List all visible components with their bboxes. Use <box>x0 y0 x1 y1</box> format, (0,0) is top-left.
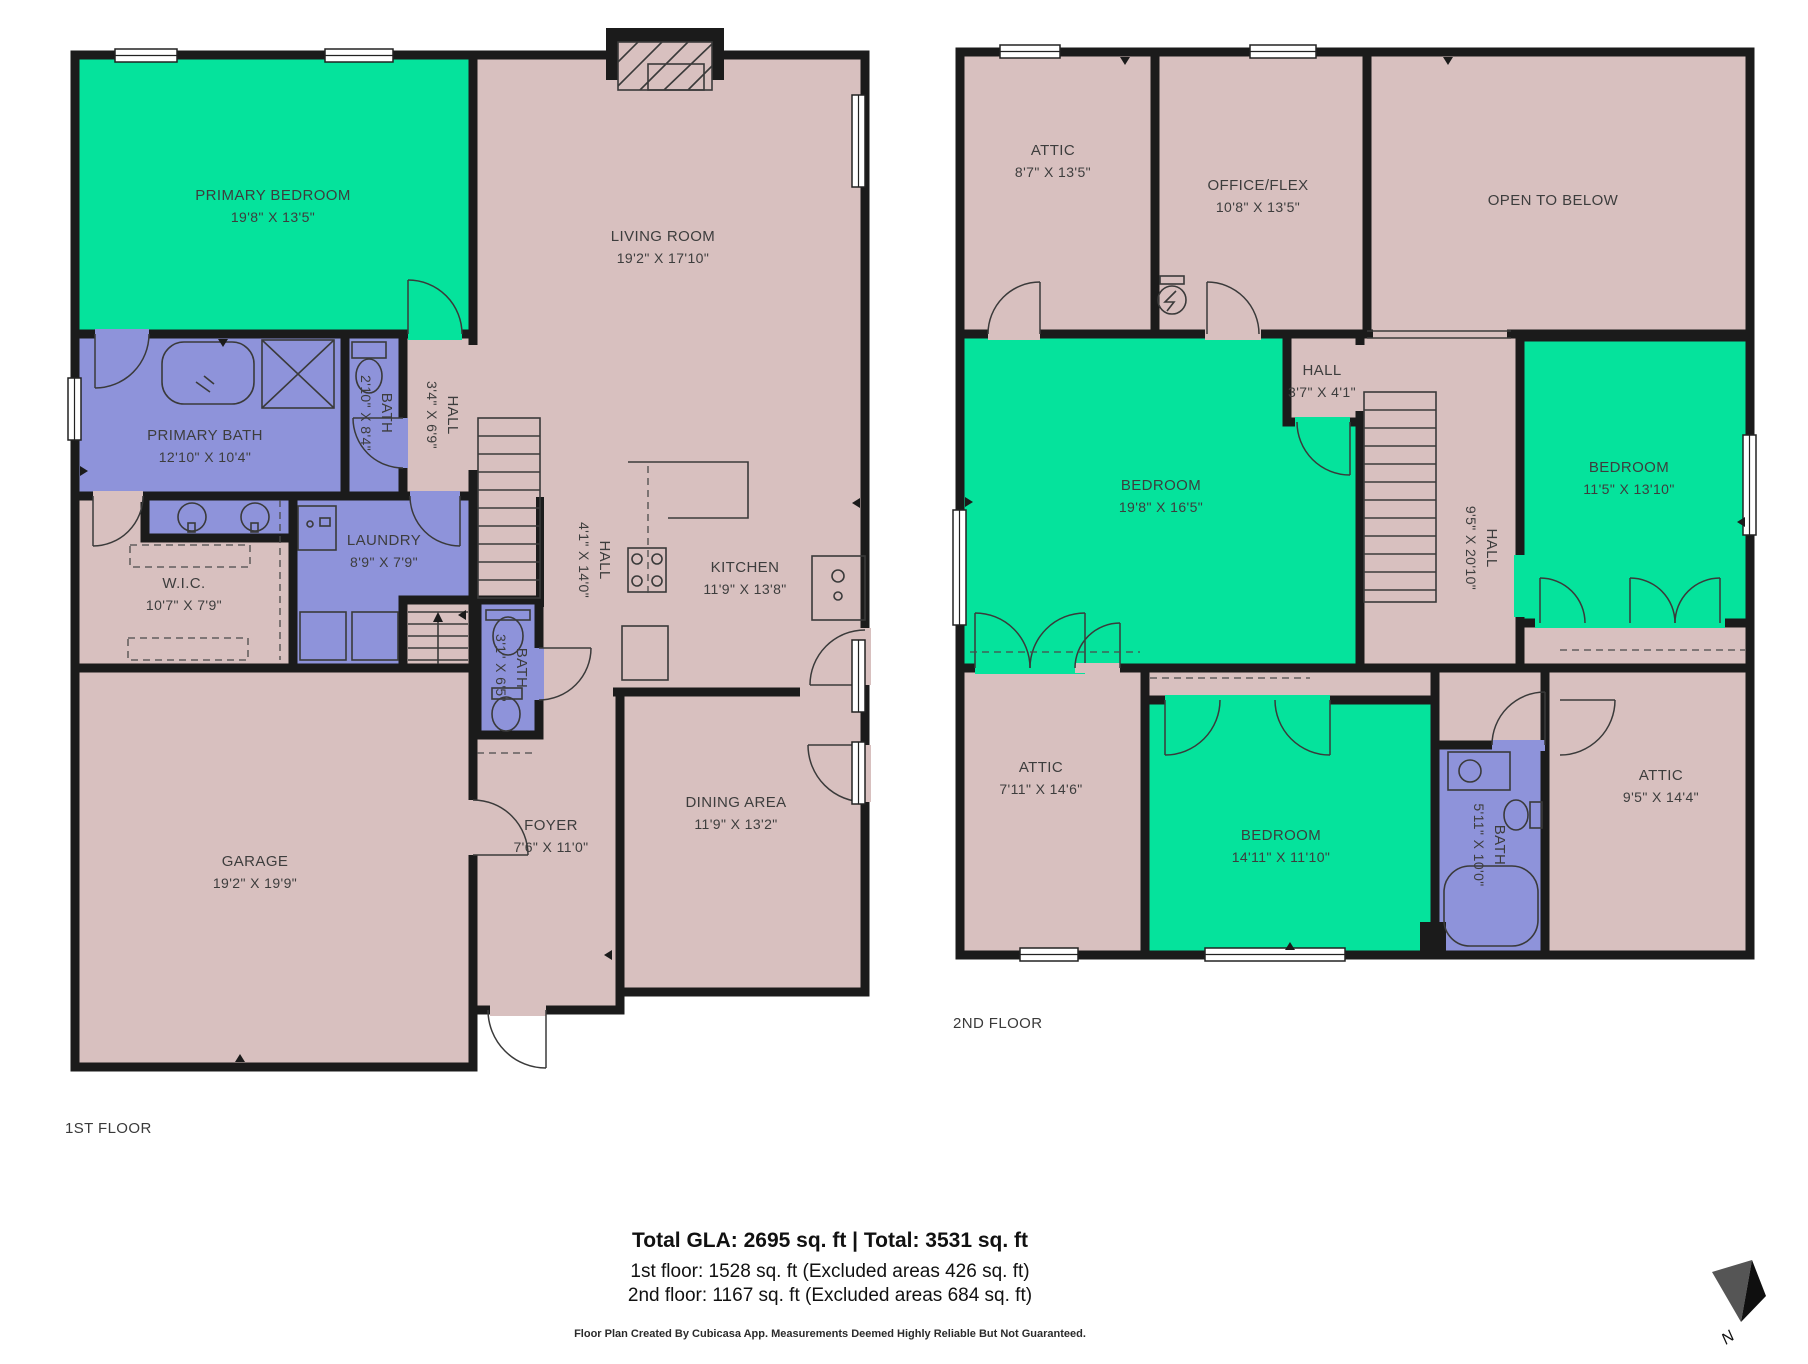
label-dining-area: DINING AREA <box>685 794 786 811</box>
footer: Total GLA: 2695 sq. ft | Total: 3531 sq.… <box>574 1229 1086 1340</box>
first-floor-plan: PRIMARY BEDROOM 19'8" X 13'5" LIVING ROO… <box>65 28 871 1137</box>
room-bath-upper <box>1435 745 1545 955</box>
dims-attic-bottomleft: 7'11" X 14'6" <box>999 781 1082 797</box>
compass-north-label: N <box>1719 1327 1739 1348</box>
svg-text:BATH: BATH <box>378 393 395 434</box>
dims-bedroom-bottom: 14'11" X 11'10" <box>1232 849 1331 865</box>
dims-dining-area: 11'9" X 13'2" <box>694 816 777 832</box>
dims-primary-bedroom: 19'8" X 13'5" <box>231 209 315 225</box>
floor2-title: 2ND FLOOR <box>953 1015 1042 1032</box>
svg-text:2'10" X 8'4": 2'10" X 8'4" <box>358 375 374 451</box>
label-attic-bottomleft: ATTIC <box>1019 759 1063 776</box>
dims-kitchen: 11'9" X 13'8" <box>703 581 786 597</box>
dims-garage: 19'2" X 19'9" <box>213 875 297 891</box>
dims-laundry: 8'9" X 7'9" <box>350 554 418 570</box>
dims-bedroom-large: 19'8" X 16'5" <box>1119 499 1203 515</box>
label-office-flex: OFFICE/FLEX <box>1207 177 1308 194</box>
railing-erase <box>1373 328 1507 341</box>
opening-kitchen-dining <box>800 686 860 698</box>
label-open-to-below: OPEN TO BELOW <box>1488 192 1619 209</box>
dims-wic: 10'7" X 7'9" <box>146 597 222 613</box>
bath-entry-nook <box>1435 668 1545 745</box>
svg-text:9'5" X 20'10": 9'5" X 20'10" <box>1463 506 1479 590</box>
fireplace-icon <box>606 28 724 90</box>
door-front-entry <box>488 1005 546 1068</box>
floor1-title: 1ST FLOOR <box>65 1120 152 1137</box>
second-floor-plan: ATTIC 8'7" X 13'5" OFFICE/FLEX 10'8" X 1… <box>953 45 1756 1032</box>
label-laundry: LAUNDRY <box>347 532 421 549</box>
opening-bedroom-right <box>1514 555 1526 617</box>
dims-foyer: 7'6" X 11'0" <box>513 839 588 855</box>
svg-text:5'11" X 10'0": 5'11" X 10'0" <box>1471 803 1487 886</box>
label-garage: GARAGE <box>222 853 289 870</box>
dims-bedroom-right: 11'5" X 13'10" <box>1583 481 1674 497</box>
svg-text:4'1" X 14'0": 4'1" X 14'0" <box>576 522 592 598</box>
footer-totals: Total GLA: 2695 sq. ft | Total: 3531 sq.… <box>632 1229 1028 1252</box>
label-primary-bedroom: PRIMARY BEDROOM <box>195 187 350 204</box>
label-wic: W.I.C. <box>162 575 205 592</box>
dims-primary-bath: 12'10" X 10'4" <box>159 449 252 465</box>
footer-floor2-area: 2nd floor: 1167 sq. ft (Excluded areas 6… <box>628 1285 1032 1306</box>
closet-corridor <box>1520 623 1750 668</box>
room-primary-bath <box>75 334 345 496</box>
svg-text:3'4" X 6'9": 3'4" X 6'9" <box>424 381 440 449</box>
label-hall-upper: HALL <box>1302 362 1341 379</box>
label-bedroom-right: BEDROOM <box>1589 459 1669 476</box>
svg-text:HALL: HALL <box>1483 528 1500 567</box>
dims-office-flex: 10'8" X 13'5" <box>1216 199 1300 215</box>
opening-hall-foyer <box>543 686 613 698</box>
room-attic-topleft <box>960 52 1155 334</box>
wall-block <box>1420 922 1446 952</box>
dims-attic-topleft: 8'7" X 13'5" <box>1015 164 1091 180</box>
label-foyer: FOYER <box>524 817 578 834</box>
svg-text:BATH: BATH <box>1491 825 1508 866</box>
label-bedroom-large: BEDROOM <box>1121 477 1201 494</box>
label-attic-topleft: ATTIC <box>1031 142 1075 159</box>
dims-attic-bottomright: 9'5" X 14'4" <box>1623 789 1699 805</box>
label-kitchen: KITCHEN <box>711 559 780 576</box>
svg-text:BATH: BATH <box>513 648 530 689</box>
compass-icon: N <box>1712 1260 1766 1348</box>
svg-text:HALL: HALL <box>596 540 613 579</box>
svg-text:HALL: HALL <box>444 395 461 434</box>
footer-disclaimer: Floor Plan Created By Cubicasa App. Meas… <box>574 1328 1086 1340</box>
vanity-counter <box>145 496 293 538</box>
dims-living-room: 19'2" X 17'10" <box>617 250 710 266</box>
svg-text:3'1" X 6'5": 3'1" X 6'5" <box>493 634 509 702</box>
room-dining-area <box>617 692 865 992</box>
label-living-room: LIVING ROOM <box>611 228 715 245</box>
footer-floor1-area: 1st floor: 1528 sq. ft (Excluded areas 4… <box>630 1261 1029 1282</box>
dims-hall-upper: 3'7" X 4'1" <box>1288 384 1356 400</box>
label-attic-bottomright: ATTIC <box>1639 767 1683 784</box>
label-bedroom-bottom: BEDROOM <box>1241 827 1321 844</box>
floorplan-canvas: PRIMARY BEDROOM 19'8" X 13'5" LIVING ROO… <box>0 0 1808 1364</box>
room-attic-bottomright <box>1545 668 1750 955</box>
label-primary-bath: PRIMARY BATH <box>147 427 263 444</box>
room-attic-bottomleft <box>960 668 1145 955</box>
